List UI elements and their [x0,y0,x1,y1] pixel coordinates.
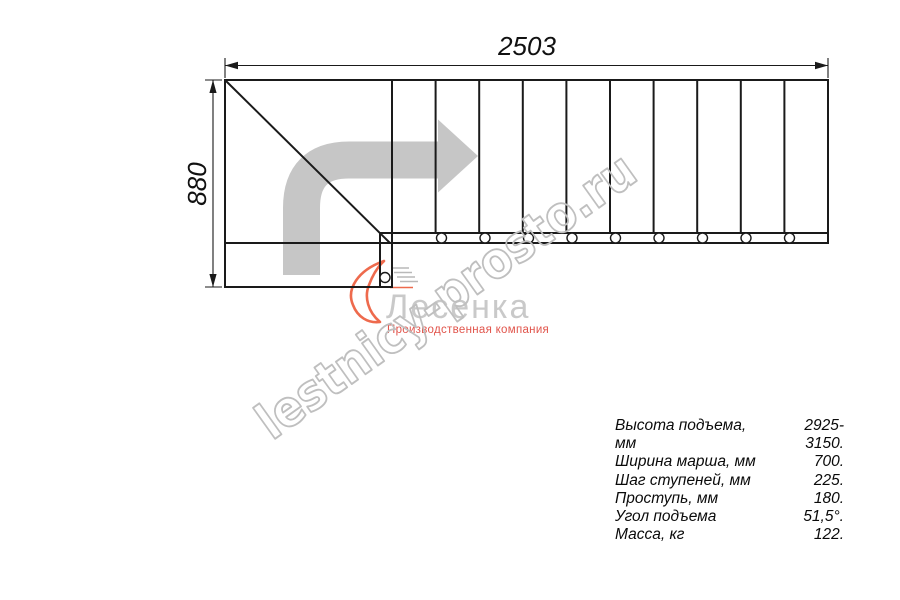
fastener-circle [654,233,664,243]
direction-arrow-icon [302,120,479,276]
spec-value: 180. [814,490,844,508]
dimension-width-label: 2503 [460,31,594,62]
dimension-height-label: 880 [177,154,217,214]
spec-label: Шаг ступеней, мм [615,472,751,490]
spec-label: Масса, кг [615,526,684,544]
spec-label: Ширина марша, мм [615,453,756,471]
page: { "dimensions": { "width_label": "2503",… [0,0,900,600]
spec-row: Проступь, мм180. [615,490,844,508]
spec-label: Проступь, мм [615,490,718,508]
direction-arrow-shaft [302,160,439,275]
fastener-circle [380,273,390,283]
fastener-circle [611,233,621,243]
spec-value: 51,5°. [803,508,844,526]
spec-row: Высота подъема, мм2925-3150. [615,417,844,453]
spec-value: 2925-3150. [768,417,844,453]
fastener-circle [437,233,447,243]
spec-row: Угол подъема51,5°. [615,508,844,526]
logo-stairs-icon [391,268,418,282]
direction-arrow-head [438,120,478,193]
spec-label: Угол подъема [615,508,716,526]
dimension-arrowhead [209,80,216,93]
dimension-arrowhead [815,62,828,69]
spec-row: Масса, кг122. [615,526,844,544]
fastener-circle [698,233,708,243]
spec-value: 700. [814,453,844,471]
spec-label: Высота подъема, мм [615,417,768,453]
specs-table: Высота подъема, мм2925-3150.Ширина марша… [615,417,844,544]
fastener-circle [785,233,795,243]
dimension-arrowhead [225,62,238,69]
dimension-arrowhead [209,274,216,287]
spec-value: 225. [814,472,844,490]
spec-row: Шаг ступеней, мм225. [615,472,844,490]
spec-row: Ширина марша, мм700. [615,453,844,471]
fastener-circle [741,233,751,243]
spec-value: 122. [814,526,844,544]
